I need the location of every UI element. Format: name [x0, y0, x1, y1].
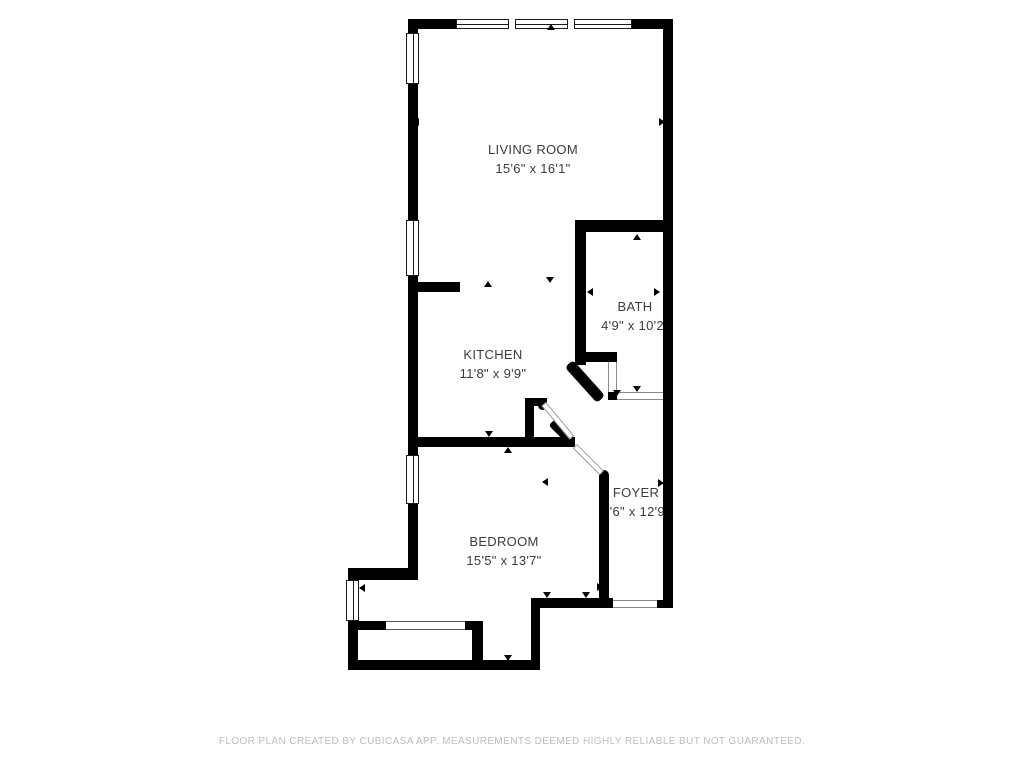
room-label-bedroom: BEDROOM 15'5" x 13'7"	[424, 532, 584, 570]
direction-marker	[597, 583, 603, 591]
wall-alcove-right	[472, 621, 483, 670]
direction-marker	[543, 592, 551, 598]
window-living-left-2	[406, 220, 419, 276]
wall-right	[663, 19, 673, 608]
direction-marker	[504, 447, 512, 453]
window-mullion	[508, 19, 516, 29]
direction-marker	[542, 478, 548, 486]
wall-bath-top	[575, 220, 663, 232]
wall-foyer-left	[599, 470, 609, 600]
room-label-living-room: LIVING ROOM 15'6" x 16'1"	[453, 140, 613, 178]
room-name: BEDROOM	[424, 532, 584, 551]
direction-marker	[587, 288, 593, 296]
wall-alcove-top-left	[348, 621, 386, 630]
window-alcove-opening	[386, 621, 465, 630]
direction-marker	[654, 288, 660, 296]
wall-stub-living-kitchen	[418, 282, 460, 292]
door-opening-bath	[617, 392, 663, 400]
direction-marker	[413, 118, 419, 126]
wall-left-kitchen	[408, 275, 418, 457]
window-living-left-1	[406, 33, 419, 84]
wall-left-mid	[408, 83, 418, 222]
wall-bedroom-jog	[348, 568, 418, 580]
direction-marker	[633, 386, 641, 392]
room-name: KITCHEN	[413, 345, 573, 364]
foyer-label-clip: FOYER 7'6" x 12'9"	[609, 400, 663, 600]
direction-marker	[359, 584, 365, 592]
floor-plan: LIVING ROOM 15'6" x 16'1" KITCHEN 11'8" …	[0, 0, 1024, 768]
door-leaf-bath	[608, 362, 617, 392]
room-label-kitchen: KITCHEN 11'8" x 9'9"	[413, 345, 573, 383]
entry-door-opening-foyer	[613, 600, 657, 608]
wall-foyer-bottom-left	[531, 598, 613, 608]
room-name: LIVING ROOM	[453, 140, 613, 159]
room-name: FOYER	[609, 483, 663, 502]
footer-disclaimer: FLOOR PLAN CREATED BY CUBICASA APP. MEAS…	[0, 736, 1024, 747]
direction-marker	[504, 655, 512, 661]
direction-marker	[633, 234, 641, 240]
wall-foyer-bottom-right	[655, 600, 673, 608]
direction-marker	[412, 389, 418, 397]
window-living-top	[456, 19, 632, 29]
room-dimensions: 15'5" x 13'7"	[424, 551, 584, 570]
direction-marker	[485, 431, 493, 437]
room-dimensions: 15'6" x 16'1"	[453, 159, 613, 178]
wall-bath-left	[575, 232, 586, 365]
room-dimensions: 7'6" x 12'9"	[609, 502, 663, 521]
direction-marker	[484, 281, 492, 287]
window-bedroom-lower-left	[346, 580, 359, 621]
wall-bath-stub	[586, 352, 617, 362]
room-label-foyer: FOYER 7'6" x 12'9"	[609, 483, 663, 521]
direction-marker	[546, 277, 554, 283]
direction-marker	[547, 24, 555, 30]
door-leaf-bedroom	[573, 444, 604, 475]
window-mullion	[567, 19, 575, 29]
direction-marker	[659, 118, 665, 126]
room-dimensions: 11'8" x 9'9"	[413, 364, 573, 383]
direction-marker	[613, 390, 621, 396]
window-bedroom-left	[406, 455, 419, 504]
direction-marker	[658, 479, 664, 487]
direction-marker	[582, 592, 590, 598]
wall-bedroom-bottom	[348, 660, 540, 670]
wall-kitchen-bottom	[408, 437, 575, 447]
